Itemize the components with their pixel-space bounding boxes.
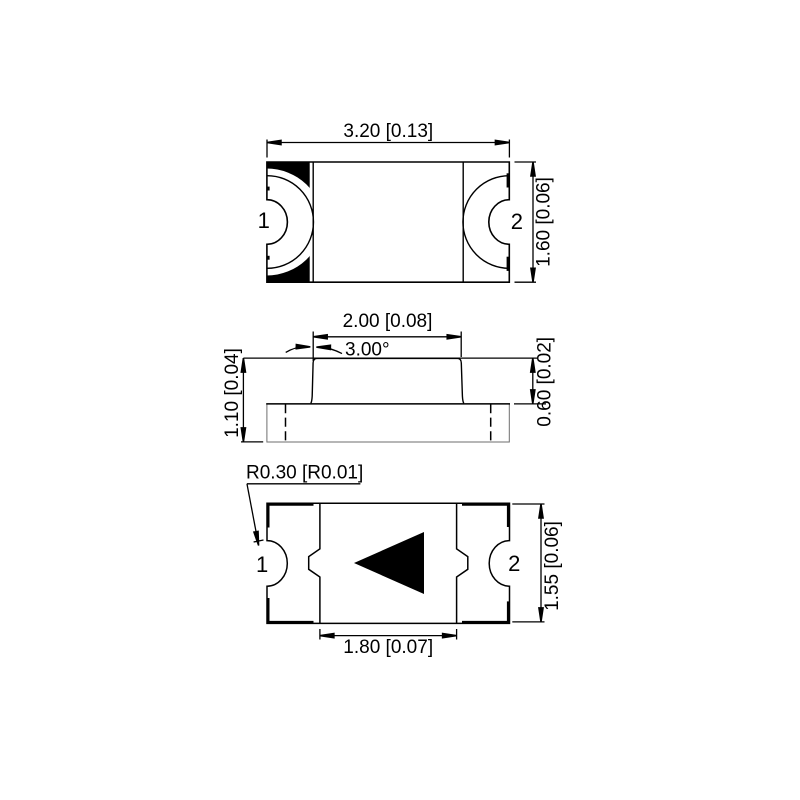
svg-text:3.00°: 3.00° xyxy=(345,340,390,361)
svg-text:R0.30 [R0.01]: R0.30 [R0.01] xyxy=(246,462,363,483)
svg-text:1: 1 xyxy=(256,552,268,577)
svg-text:1.10 [0.04]: 1.10 [0.04] xyxy=(222,348,243,438)
svg-text:1.55 [0.06]: 1.55 [0.06] xyxy=(542,521,563,611)
svg-text:2: 2 xyxy=(508,551,520,576)
svg-text:1.80 [0.07]: 1.80 [0.07] xyxy=(343,637,433,658)
svg-text:1: 1 xyxy=(258,208,270,233)
svg-text:2: 2 xyxy=(511,209,523,234)
svg-text:0.60 [0.02]: 0.60 [0.02] xyxy=(534,337,555,427)
svg-text:1.60 [0.06]: 1.60 [0.06] xyxy=(534,177,555,267)
svg-text:2.00 [0.08]: 2.00 [0.08] xyxy=(343,311,433,332)
svg-text:3.20 [0.13]: 3.20 [0.13] xyxy=(343,121,433,142)
